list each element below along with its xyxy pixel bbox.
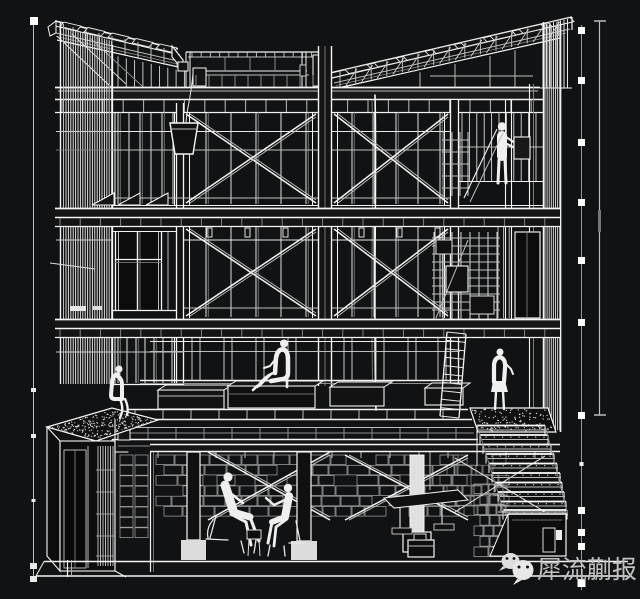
svg-text:犀流蒯报: 犀流蒯报 bbox=[537, 556, 637, 584]
